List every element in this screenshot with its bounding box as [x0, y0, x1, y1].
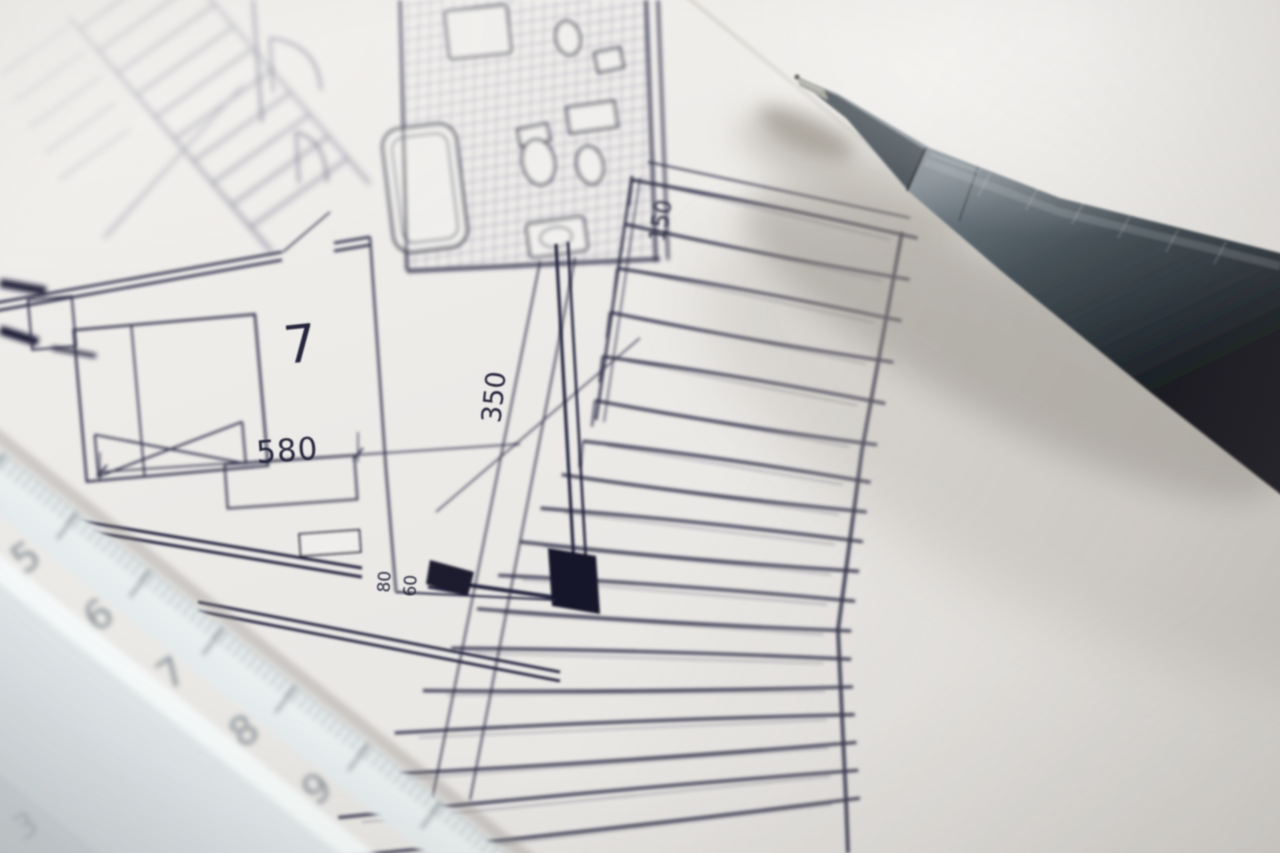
deck-plank [477, 609, 851, 631]
dim-label-60: 60 [400, 574, 421, 597]
stair-step [116, 5, 214, 74]
wall-top [0, 212, 370, 311]
door-leaf-solid [426, 560, 474, 596]
deck-plank-echo [586, 479, 839, 514]
deck-plank-echo [565, 513, 835, 545]
stair-step [45, 103, 115, 153]
stair-step [0, 25, 70, 75]
stair-step [60, 129, 130, 179]
shower-icon [445, 5, 512, 59]
photo-architectural-plan: 7 580 350 150 80 60 5 6 7 8 9 3 [0, 0, 1280, 853]
stair-step [154, 49, 252, 118]
plan-scene: 7 580 350 150 80 60 5 6 7 8 9 3 [0, 0, 1280, 853]
deck-plank [423, 687, 853, 691]
stair-step [192, 93, 290, 162]
stair-step [211, 115, 309, 184]
stair-direction-arrow [104, 86, 242, 238]
door-arc-icon [270, 38, 321, 90]
stair-step [15, 51, 85, 101]
pen-tip-point [794, 74, 799, 79]
stair-step [173, 71, 271, 140]
deck-plank [541, 508, 863, 541]
deck-plank [395, 715, 855, 733]
stair-step [78, 0, 176, 30]
dim-label-580: 580 [255, 431, 320, 471]
stair-step [30, 77, 100, 127]
deck-post [592, 401, 595, 427]
bed-icon [74, 314, 269, 481]
dim-label-350: 350 [476, 370, 512, 425]
sink-icon [594, 48, 624, 73]
staircase [0, 0, 370, 252]
dim-label-80: 80 [374, 570, 395, 593]
deck-plank-echo [501, 613, 823, 634]
room-number-label: 7 [281, 314, 320, 377]
deck-plank [562, 475, 867, 512]
stair-step [230, 137, 328, 206]
stair-step [135, 27, 233, 96]
wall-junction-solid [548, 548, 600, 614]
sink-counter [566, 101, 617, 133]
bathtub-icon [381, 122, 470, 254]
threshold-box [299, 530, 360, 556]
deck-plank-echo [390, 748, 828, 780]
